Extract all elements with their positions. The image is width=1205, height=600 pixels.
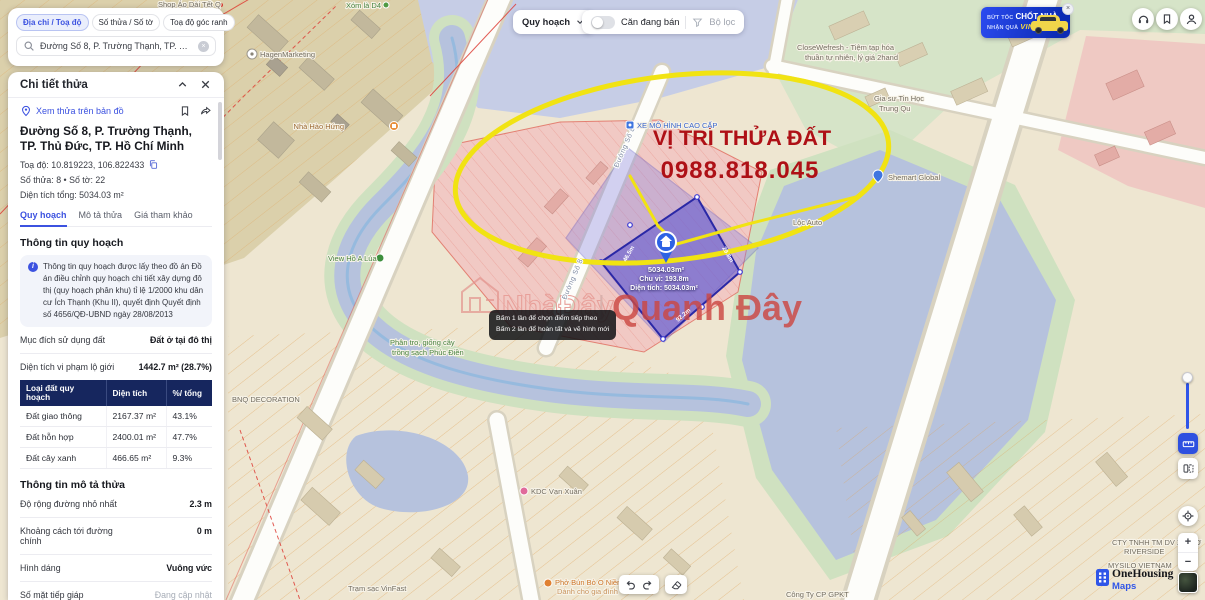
draw-tooltip-line2: Bấm 2 lần để hoàn tất và vẽ hình mới <box>496 325 609 336</box>
table-row: Đất giao thông 2167.37 m² 43.1% <box>20 406 212 427</box>
tab-planning[interactable]: Quy hoạch <box>20 207 67 227</box>
cell: 2167.37 m² <box>106 406 166 427</box>
parcel-detail-panel: Chi tiết thửa Xem thửa trên bản đồ <box>8 72 224 600</box>
map-poi-label: View Hồ A Lúa <box>328 254 377 263</box>
cell: Đất hỗn hợp <box>20 427 106 448</box>
planning-notice-text: Thông tin quy hoạch được lấy theo đồ án … <box>43 261 204 321</box>
map-poi-label: Gia sư Tin Học <box>874 94 924 103</box>
parcel-coordinates: Toạ độ: 10.819223, 106.822433 <box>20 160 144 170</box>
map-pin-icon <box>20 105 32 117</box>
map-poi-label: RIVERSIDE <box>1124 547 1164 556</box>
account-button[interactable] <box>1180 8 1202 30</box>
kv-row: Diện tích vi phạm lộ giới 1442.7 m² (28.… <box>20 362 212 372</box>
compare-view-button[interactable] <box>1178 458 1198 479</box>
onehousing-logo-icon <box>1096 569 1109 586</box>
map-poi-label: thuần tự nhiên, lý giá 2hand <box>805 53 898 62</box>
tab-description[interactable]: Mô tả thửa <box>79 207 123 226</box>
share-icon[interactable] <box>199 105 212 117</box>
kv-label: Diện tích vi phạm lộ giới <box>20 362 114 372</box>
kv-row: Số mặt tiếp giáp Đang cập nhật <box>20 590 212 600</box>
tab-address-coordinates[interactable]: Địa chỉ / Toạ độ <box>16 14 89 31</box>
clear-search-button[interactable]: × <box>198 41 209 52</box>
close-button[interactable] <box>199 78 212 91</box>
kv-row: Khoảng cách tới đường chính 0 m <box>20 526 212 546</box>
description-heading: Thông tin mô tả thửa <box>20 479 212 491</box>
car-illustration <box>1031 12 1068 34</box>
map-poi-label: Lộc Auto <box>793 218 822 227</box>
kv-value: 0 m <box>197 526 212 536</box>
undo-redo-group <box>619 575 659 594</box>
copy-icon[interactable] <box>148 159 159 170</box>
vinfast-promo-banner[interactable]: BỨT TỐC CHỐT NHÀ NHẬN QUÀ VINFAST × <box>981 7 1070 38</box>
search-card: Địa chỉ / Toạ độ Số thửa / Số tờ Toạ độ … <box>8 8 224 66</box>
draw-tooltip-line1: Bấm 1 lần để chọn điểm tiếp theo <box>496 314 609 325</box>
bookmark-icon <box>1161 13 1173 25</box>
parcel-pin-area: 5034.03m² <box>648 265 685 274</box>
kv-label: Hình dáng <box>20 563 61 573</box>
kv-value: Đất ở tại đô thị <box>150 335 212 345</box>
map-poi-label: Phở Bún Bò O Niềm <box>555 578 623 587</box>
zoom-out-button[interactable]: − <box>1178 552 1198 572</box>
tab-reference-price[interactable]: Giá tham khảo <box>134 207 193 226</box>
kv-row: Mục đích sử dụng đất Đất ở tại đô thị <box>20 335 212 345</box>
parcel-total-area: Diện tích tổng: 5034.03 m² <box>20 190 124 200</box>
search-query-text: Đường Số 8, P. Trường Thạnh, TP. Thủ Đức… <box>40 41 193 51</box>
watermark-right: Quanh Đây <box>612 287 802 328</box>
kv-row: Độ rộng đường nhỏ nhất 2.3 m <box>20 499 212 509</box>
cell: 47.7% <box>166 427 212 448</box>
redo-icon <box>641 578 654 591</box>
map-poi-label: Trung Qu <box>879 104 910 113</box>
map-poi-label: Công Ty CP GPKT <box>786 590 849 599</box>
parcel-address: Đường Số 8, P. Trường Thạnh, TP. Thủ Đức… <box>20 124 212 154</box>
kv-label: Độ rộng đường nhỏ nhất <box>20 499 117 509</box>
view-on-map-link[interactable]: Xem thửa trên bản đồ <box>36 106 175 116</box>
col-header: %/ tổng <box>166 380 212 406</box>
search-mode-tabs: Địa chỉ / Toạ độ Số thửa / Số tờ Toạ độ … <box>8 8 224 31</box>
person-icon <box>1185 13 1198 26</box>
locate-icon <box>1181 509 1195 523</box>
undo-icon <box>624 578 637 591</box>
parcel-area-line: Diện tích: 5034.03m² <box>630 285 698 292</box>
col-header: Loại đất quy hoạch <box>20 380 106 406</box>
map-poi-label: Shemart Global <box>888 173 940 182</box>
eraser-button[interactable] <box>665 575 687 594</box>
table-row: Đất cây xanh 466.65 m² 9.3% <box>20 448 212 469</box>
attribution-sub: Maps <box>1112 582 1173 592</box>
kv-label: Mục đích sử dụng đất <box>20 335 105 345</box>
kv-value: 2.3 m <box>190 499 213 509</box>
promo-close-button[interactable]: × <box>1062 3 1074 15</box>
panel-title: Chi tiết thửa <box>20 79 88 91</box>
cell: Đất cây xanh <box>20 448 106 469</box>
tab-parcel-sheet[interactable]: Số thửa / Số tờ <box>92 14 161 31</box>
kv-row: Hình dáng Vuông vức <box>20 563 212 573</box>
undo-button[interactable] <box>624 578 637 591</box>
support-button[interactable] <box>1132 8 1154 30</box>
map-poi-label: Dành cho gia đình <box>557 587 618 596</box>
search-icon <box>23 40 35 52</box>
zoom-slider-track[interactable] <box>1186 383 1189 429</box>
table-row: Đất hỗn hợp 2400.01 m² 47.7% <box>20 427 212 448</box>
zoom-in-button[interactable]: + <box>1178 533 1198 552</box>
detail-tabs: Quy hoạch Mô tả thửa Giá tham khảo <box>20 207 212 227</box>
cell: 9.3% <box>166 448 212 469</box>
saved-items-button[interactable] <box>1156 8 1178 30</box>
split-view-icon <box>1182 462 1195 475</box>
zoom-slider-handle[interactable] <box>1182 372 1193 383</box>
tab-corner-coordinates[interactable]: Toạ độ góc ranh <box>163 14 234 31</box>
planning-notice: i Thông tin quy hoạch được lấy theo đồ á… <box>20 255 212 327</box>
map-poi-label: BNQ DECORATION <box>232 395 300 404</box>
ruler-icon <box>1181 437 1196 451</box>
kv-value: Vuông vức <box>166 563 212 573</box>
listings-toggle-label: Căn đang bán <box>621 17 679 27</box>
attribution-brand: OneHousing <box>1112 569 1173 581</box>
draw-tooltip: Bấm 1 lần để chọn điểm tiếp theo Bấm 2 l… <box>489 310 616 340</box>
cell: 2400.01 m² <box>106 427 166 448</box>
kv-value: 1442.7 m² (28.7%) <box>139 362 212 372</box>
col-header: Diện tích <box>106 380 166 406</box>
map-poi-label: Phân tro, giống cây <box>390 338 455 347</box>
zoom-controls: + − <box>1178 533 1198 571</box>
kv-value: Đang cập nhật <box>155 590 212 600</box>
map-poi-label: trồng sạch Phúc Điền <box>392 348 464 357</box>
layer-select-label: Quy hoạch <box>522 17 570 27</box>
headset-icon <box>1137 13 1150 26</box>
map-poi-label: CloseWefresh - Tiệm tạp hóa <box>797 43 895 52</box>
cell: Đất giao thông <box>20 406 106 427</box>
eraser-icon <box>670 578 683 591</box>
measure-tool-button[interactable] <box>1178 433 1198 454</box>
kv-label: Khoảng cách tới đường chính <box>20 526 130 546</box>
promo-line1: BỨT TỐC <box>987 15 1013 22</box>
map-poi-label: Nhà Hào Hứng <box>294 122 344 131</box>
parcel-sheet-numbers: Số thửa: 8 • Số tờ: 22 <box>20 175 105 185</box>
cell: 466.65 m² <box>106 448 166 469</box>
collapse-button[interactable] <box>176 78 189 91</box>
map-poi-label: Trạm sạc VinFast <box>348 584 407 593</box>
table-header-row: Loại đất quy hoạch Diện tích %/ tổng <box>20 380 212 406</box>
map-app: VỊ TRÍ THỬA ĐẤT 0988.818.045 NhàĐây | Qu… <box>0 0 1205 600</box>
cell: 43.1% <box>166 406 212 427</box>
onehousing-maps-attribution: OneHousing Maps <box>1096 569 1173 591</box>
bookmark-icon[interactable] <box>179 105 191 117</box>
planning-land-table: Loại đất quy hoạch Diện tích %/ tổng Đất… <box>20 380 212 469</box>
parcel-perimeter: Chu vi: 193.8m <box>639 276 688 283</box>
listings-toggle[interactable] <box>591 16 615 29</box>
info-icon: i <box>28 262 38 272</box>
map-poi-label: KDC Vạn Xuân <box>531 487 582 496</box>
annotation-phone: 0988.818.045 <box>661 157 820 184</box>
filter-button[interactable]: Bộ lọc <box>709 17 735 27</box>
locate-me-button[interactable] <box>1178 506 1198 526</box>
basemap-satellite-thumbnail[interactable] <box>1178 572 1198 593</box>
panel-scrollbar[interactable] <box>218 102 222 160</box>
search-input[interactable]: Đường Số 8, P. Trường Thạnh, TP. Thủ Đức… <box>16 36 216 56</box>
filter-icon <box>692 17 703 28</box>
listings-filter-group: Căn đang bán Bộ lọc <box>582 10 744 34</box>
map-poi-label: HagenMarketing <box>260 50 315 59</box>
redo-button[interactable] <box>641 578 654 591</box>
planning-heading: Thông tin quy hoạch <box>20 237 212 249</box>
promo-line3: NHẬN QUÀ <box>987 25 1018 32</box>
panel-header: Chi tiết thửa <box>8 72 224 98</box>
map-poi-label: Xóm là D4 <box>346 1 381 10</box>
map-poi-label: XE MÔ HÌNH CAO CẤP <box>637 120 717 130</box>
kv-label: Số mặt tiếp giáp <box>20 590 84 600</box>
